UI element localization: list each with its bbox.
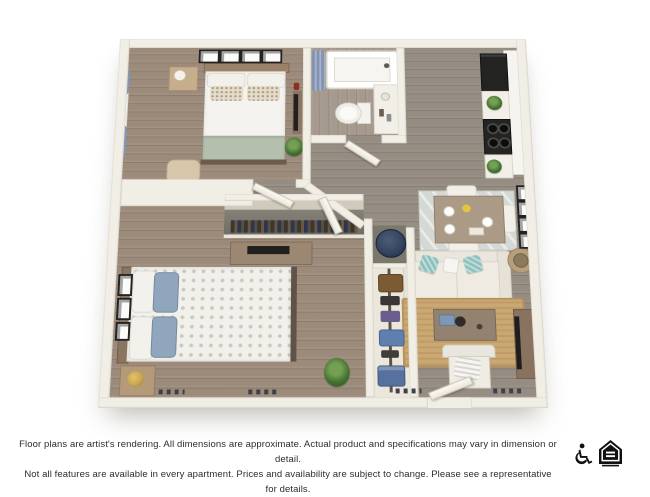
wall-bottom-left-of-entry: [98, 397, 428, 408]
bedroom1-red-vase: [294, 83, 300, 90]
baseboard-items: [159, 390, 185, 395]
vanity-bottle: [379, 109, 384, 116]
closet-clothes-dark: [381, 350, 399, 358]
baseboard-items: [396, 389, 422, 394]
bedroom1-sage-blanket: [203, 136, 285, 160]
water-heater-tank: [375, 229, 406, 258]
dining-table: [433, 196, 505, 244]
bedroom2-closet-trim: [224, 234, 364, 238]
disclaimer-line-1: Floor plans are artist's rendering. All …: [18, 437, 558, 467]
bedroom2-tv: [247, 246, 289, 254]
vanity-sink: [381, 93, 390, 101]
closet-clothes-blue-folded: [377, 365, 405, 386]
bedroom1-pillow-patterned: [210, 86, 243, 101]
closet-clothes-dark: [380, 296, 400, 305]
bedroom2-pillow-blue: [152, 272, 179, 312]
bedroom1-accent-chair: [166, 160, 201, 181]
shower-curtain: [312, 50, 325, 91]
wall-closet-divider: [373, 263, 407, 268]
vanity-bottle: [387, 114, 392, 121]
bedroom2-wall-frame: [117, 274, 133, 296]
baseboard-items: [493, 389, 525, 394]
dinner-plate: [444, 224, 456, 235]
bedroom1-pillow-patterned: [247, 86, 280, 101]
bedroom1-wall-frame: [199, 50, 220, 64]
closet-clothes-tan: [378, 274, 403, 292]
side-table-lamp: [513, 253, 529, 267]
wheelchair-accessible-icon: [569, 442, 594, 468]
burner: [498, 123, 511, 134]
baseboard-items: [248, 390, 278, 395]
wall-closet-back: [225, 194, 364, 201]
bedroom1-bed-footboard: [200, 160, 286, 165]
wall-bottom-right-of-entry: [471, 397, 548, 408]
bedroom1-wall-frame: [261, 50, 282, 64]
bedroom2-wall-frame: [115, 322, 131, 341]
wall-bathroom-bottom-right: [381, 135, 406, 143]
kitchen-plant: [486, 96, 502, 110]
toilet-bowl: [335, 102, 362, 124]
wall-bathroom-bottom-left: [311, 135, 346, 143]
decor-item: [476, 324, 482, 330]
equal-housing-opportunity-icon: [597, 439, 624, 467]
closet-clothes-purple: [380, 311, 400, 322]
disclaimer-text: Floor plans are artist's rendering. All …: [18, 437, 558, 497]
bedroom1-tv: [293, 94, 298, 131]
bedroom1-wall-frame: [240, 50, 261, 64]
floor-plan: [98, 39, 548, 408]
bedroom2-bed-footboard: [290, 267, 297, 362]
burner: [498, 137, 511, 148]
white-throw-pillow: [442, 257, 459, 274]
wall-top: [120, 39, 527, 48]
bedroom1-wall-frame: [219, 50, 240, 64]
bedroom2-plant: [324, 358, 350, 387]
bedroom2-wall-frame: [116, 298, 132, 320]
refrigerator: [480, 54, 509, 93]
wall-bedroom1-bathroom: [302, 48, 311, 188]
yellow-flowers: [462, 204, 471, 212]
disclaimer-line-2: Not all features are available in every …: [18, 467, 558, 497]
tub-faucet: [384, 63, 390, 68]
dinner-plate: [443, 206, 455, 217]
decor-bowl: [455, 316, 466, 326]
kitchen-plant: [486, 160, 502, 174]
bedroom1-plant: [285, 137, 304, 156]
bedroom2-pillow-blue: [150, 316, 177, 357]
closet-clothes-blue: [379, 329, 405, 346]
wall-bedroom1-bedroom2: [120, 179, 253, 206]
coffee-table-book: [439, 315, 455, 326]
serving-tray: [469, 227, 485, 235]
dinner-plate: [482, 217, 494, 228]
